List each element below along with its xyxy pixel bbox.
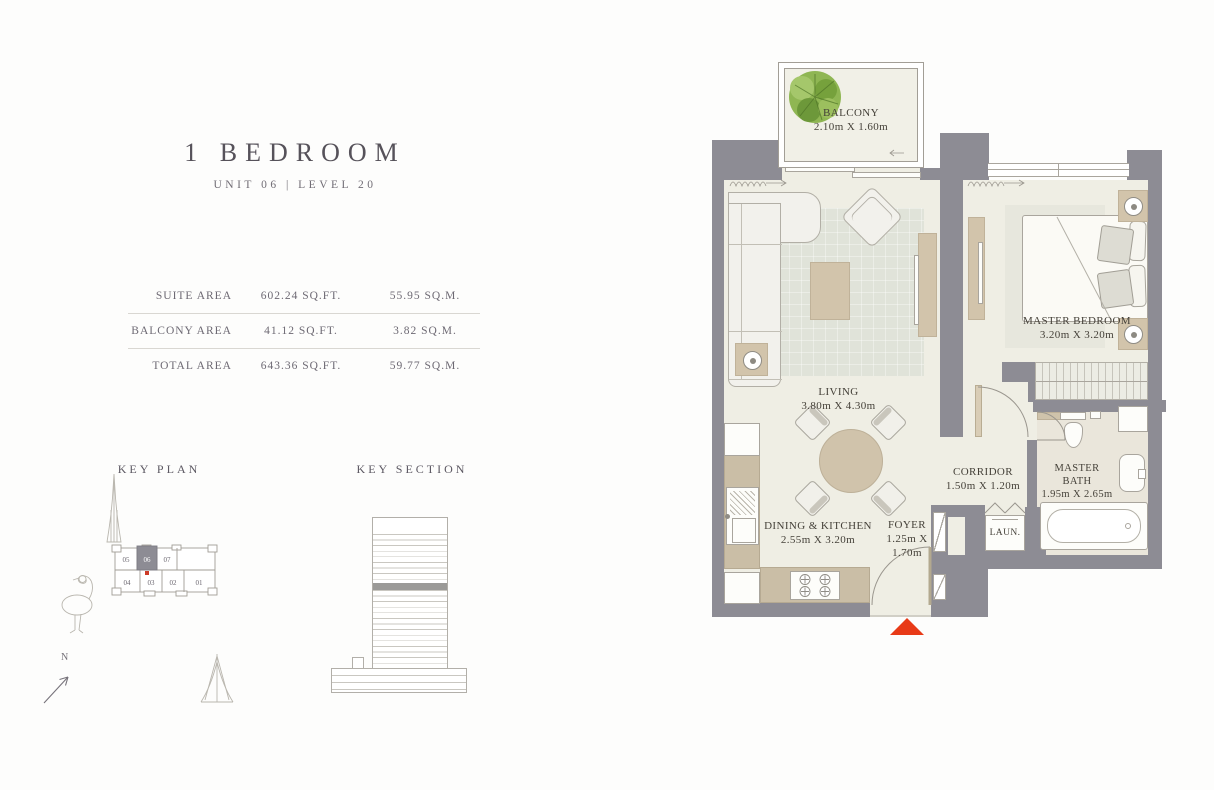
master-bath-label: MASTER BATH 1.95m X 2.65m	[1022, 462, 1132, 501]
duct-shaft	[1118, 406, 1148, 432]
stove-burners-icon	[791, 572, 839, 599]
north-label: N	[61, 652, 68, 663]
wall	[712, 168, 724, 617]
key-section-title: KEY SECTION	[351, 462, 473, 477]
room-dims: 1.25m X 1.70m	[877, 532, 937, 560]
living-label: LIVING 3.80m X 4.30m	[766, 385, 911, 413]
creek-tower-icon	[201, 654, 233, 702]
room-name: FOYER	[877, 518, 937, 532]
bedside-lamp-icon	[1124, 197, 1143, 216]
key-plan-diagram: 05 06 07 04 03 02 01 N	[30, 450, 250, 720]
wall	[920, 168, 940, 180]
unit-label-highlighted: 06	[144, 556, 152, 564]
laundry-shelf-line	[992, 519, 1018, 520]
wall	[712, 603, 870, 617]
floor-plan: BALCONY 2.10m X 1.60m LIVING 3.80m X 4.3…	[706, 50, 1166, 640]
master-bedroom-label: MASTER BEDROOM 3.20m X 3.20m	[997, 314, 1157, 342]
faucet-icon	[725, 514, 730, 519]
unit-label: 07	[164, 556, 172, 564]
room-dims: 2.10m X 1.60m	[778, 120, 924, 134]
sofa-cushion-line	[729, 244, 782, 245]
kitchen-appliance	[724, 572, 760, 604]
room-name: BALCONY	[778, 106, 924, 120]
area-sqm-value: 59.77 SQ.M.	[370, 360, 480, 372]
area-sqft-value: 643.36 SQ.FT.	[232, 360, 370, 372]
area-sqft-value: 602.24 SQ.FT.	[232, 290, 370, 302]
wall	[1148, 180, 1162, 569]
wall	[1002, 362, 1037, 382]
duct-panel	[933, 574, 946, 600]
wardrobe-rail	[1036, 381, 1147, 382]
unit-marker	[145, 571, 149, 575]
burj-khalifa-icon	[107, 474, 121, 542]
room-dims: 1.95m X 2.65m	[1022, 488, 1132, 501]
room-name: MASTER BATH	[1044, 462, 1110, 488]
tower-cap	[373, 518, 447, 531]
room-dims: 3.80m X 4.30m	[766, 399, 911, 413]
sink-tap-icon	[1138, 469, 1146, 479]
area-row-label: SUITE AREA	[128, 290, 232, 302]
unit-label: 05	[123, 556, 131, 564]
north-arrow-icon	[44, 677, 68, 703]
unit-label: 02	[170, 579, 178, 587]
room-dims: 3.20m X 3.20m	[997, 328, 1157, 342]
foyer-label: FOYER 1.25m X 1.70m	[877, 518, 937, 560]
area-row-label: BALCONY AREA	[128, 325, 232, 337]
area-sqm-value: 55.95 SQ.M.	[370, 290, 480, 302]
table-row: BALCONY AREA 41.12 SQ.FT. 3.82 SQ.M.	[128, 314, 480, 349]
toilet-cistern	[1060, 412, 1086, 420]
building-plate	[112, 545, 217, 596]
wall	[940, 133, 989, 180]
highlighted-level	[373, 583, 447, 590]
area-table: SUITE AREA 602.24 SQ.FT. 55.95 SQ.M. BAL…	[128, 279, 480, 383]
unit-level-subtitle: UNIT 06 | LEVEL 20	[90, 179, 500, 191]
wall	[982, 555, 1162, 569]
wardrobe	[1035, 362, 1148, 400]
tv-living	[914, 255, 919, 325]
page-title: 1 BEDROOM	[90, 138, 500, 168]
unit-label: 03	[148, 579, 156, 587]
dining-table	[819, 429, 883, 493]
table-lamp-icon	[743, 351, 762, 370]
area-sqm-value: 3.82 SQ.M.	[370, 325, 480, 337]
floor-entry	[870, 603, 931, 617]
coffee-table	[810, 262, 850, 320]
flamingo-icon	[62, 576, 92, 634]
bathtub-drain-icon	[1125, 523, 1131, 529]
key-section-tower	[372, 517, 448, 670]
tv-console-living	[918, 233, 937, 337]
bath-shelf	[1090, 411, 1101, 419]
sofa-cushion-line	[729, 331, 782, 332]
balcony-label: BALCONY 2.10m X 1.60m	[778, 106, 924, 134]
drainboard	[730, 491, 755, 515]
throw-pillow	[1097, 269, 1135, 309]
room-name: MASTER BEDROOM	[997, 314, 1157, 328]
lamp-dot	[750, 358, 756, 364]
room-name: LIVING	[766, 385, 911, 399]
area-sqft-value: 41.12 SQ.FT.	[232, 325, 370, 337]
window-mullion-line	[1058, 163, 1059, 177]
unit-label: 01	[196, 579, 204, 587]
bedroom-door-leaf	[975, 385, 982, 437]
key-section-podium	[331, 668, 467, 693]
sofa-cushion-line	[729, 379, 782, 380]
room-name: DINING & KITCHEN	[738, 519, 898, 533]
dining-kitchen-label: DINING & KITCHEN 2.55m X 3.20m	[738, 519, 898, 547]
entry-marker	[890, 618, 924, 635]
throw-pillow	[1097, 225, 1135, 265]
wall	[1127, 150, 1162, 180]
table-row: TOTAL AREA 643.36 SQ.FT. 59.77 SQ.M.	[128, 349, 480, 383]
unit-label: 04	[124, 579, 132, 587]
bathtub	[1040, 502, 1148, 550]
balcony-slider-panel	[852, 172, 921, 178]
stove	[790, 571, 840, 600]
fridge	[724, 423, 760, 456]
table-row: SUITE AREA 602.24 SQ.FT. 55.95 SQ.M.	[128, 279, 480, 314]
wall	[940, 180, 963, 437]
room-dims: 2.55m X 3.20m	[738, 533, 898, 547]
laundry-label: LAUN.	[985, 526, 1025, 540]
lamp-dot	[1131, 204, 1137, 210]
floorplan-page: 1 BEDROOM UNIT 06 | LEVEL 20 SUITE AREA …	[0, 0, 1214, 790]
area-row-label: TOTAL AREA	[128, 360, 232, 372]
room-name: LAUN.	[985, 526, 1025, 540]
tv-bedroom	[978, 242, 983, 304]
